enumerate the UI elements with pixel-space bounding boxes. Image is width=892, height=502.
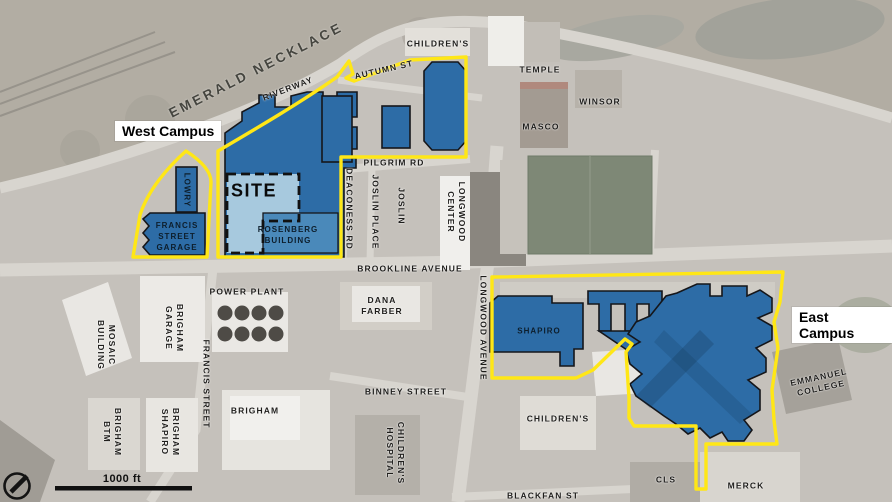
masco-building	[520, 82, 568, 148]
east-campus-label: East Campus	[792, 307, 892, 343]
parking-lot	[500, 160, 528, 254]
brigham-shapiro-building	[146, 398, 198, 472]
childrens-hospital-building	[355, 415, 420, 495]
west-mid-building	[382, 106, 410, 148]
brigham-btm-building	[88, 398, 140, 470]
longwood-center-building	[440, 176, 470, 270]
winsor-building	[575, 70, 622, 108]
west-campus-label: West Campus	[115, 121, 221, 141]
childrens-north-building	[405, 28, 470, 56]
temple-building	[488, 16, 524, 66]
rosenberg-building-shape	[263, 213, 338, 253]
brigham-garage-building	[140, 276, 205, 362]
lowry-building	[176, 167, 197, 212]
francis-street-garage-building	[143, 213, 205, 255]
masco-roof-strip	[520, 82, 568, 89]
brigham-roof	[230, 396, 300, 440]
joslin-place-road	[370, 166, 372, 264]
merck-building	[700, 452, 800, 502]
scale-bar	[55, 486, 192, 491]
childrens-south-building	[520, 396, 596, 450]
temple-annex	[524, 22, 560, 62]
aerial-basemap	[0, 0, 892, 502]
power-plant-building	[212, 292, 288, 352]
campus-map: EMERALD NECKLACERIVERWAYAUTUMN STCHILDRE…	[0, 0, 892, 502]
dana-farber-roof	[352, 286, 420, 322]
cls-building	[630, 462, 700, 502]
west-tower	[322, 96, 352, 162]
west-tall-building	[424, 62, 466, 150]
